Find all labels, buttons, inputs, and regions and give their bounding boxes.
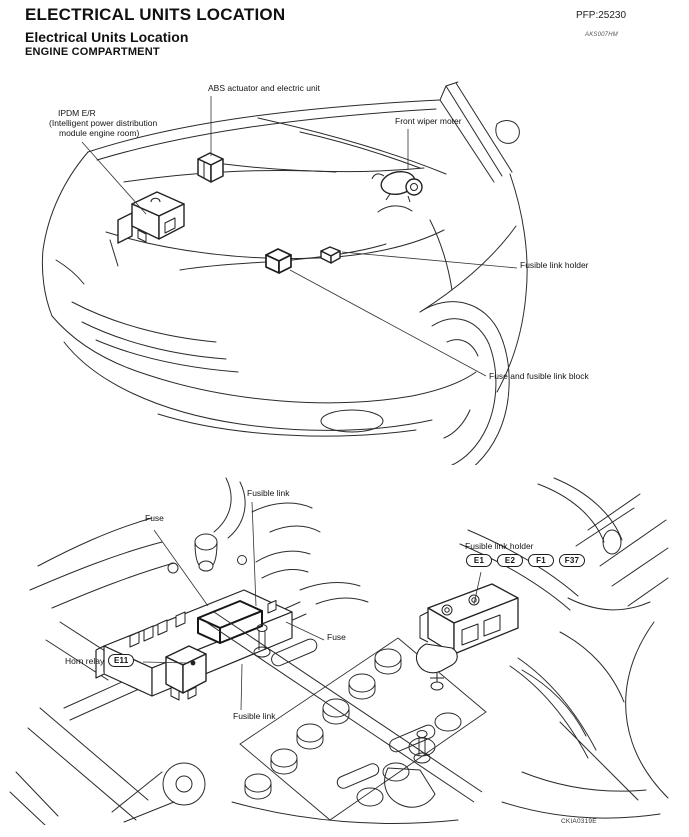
battery-area-figure xyxy=(0,470,689,825)
label-fusible-link-holder: Fusible link holder xyxy=(520,260,589,270)
label-ipdm-line2: (Intelligent power distribution xyxy=(49,118,157,128)
connector-badge-e2: E2 xyxy=(497,554,523,567)
horn-relay-dot xyxy=(191,661,196,666)
label-front-wiper-motor: Front wiper moter xyxy=(395,116,462,126)
page-title: ELECTRICAL UNITS LOCATION xyxy=(25,5,285,25)
abs-actuator-drawing xyxy=(198,153,223,182)
label-fuse-mid: Fuse xyxy=(327,632,346,642)
connector-badge-e1: E1 xyxy=(466,554,492,567)
fusible-link-holder-assembly-drawing xyxy=(416,584,518,690)
connector-badge-row: E1 E2 F1 F37 xyxy=(466,554,585,567)
label-fusible-link-top: Fusible link xyxy=(247,488,290,498)
fuse-block-drawing xyxy=(266,249,291,273)
pfp-code: PFP:25230 xyxy=(576,10,626,21)
wiper-motor-drawing xyxy=(372,169,422,202)
subtitle-ref-code: AKS007HM xyxy=(585,32,618,38)
horn-relay-label-row: Horn relay E11 xyxy=(65,654,134,667)
label-fusible-link-bottom: Fusible link xyxy=(233,711,276,721)
label-ipdm: IPDM E/R (Intelligent power distribution… xyxy=(49,108,157,138)
manual-page: ELECTRICAL UNITS LOCATION PFP:25230 Elec… xyxy=(0,0,689,837)
leader-lines xyxy=(82,96,517,376)
label-abs-actuator: ABS actuator and electric unit xyxy=(208,83,320,93)
section-heading: ENGINE COMPARTMENT xyxy=(25,46,160,58)
ipdm-module-drawing xyxy=(118,192,184,243)
figure-ref-code: CKIA0319E xyxy=(561,818,597,825)
label-ipdm-line3: module engine room) xyxy=(59,128,157,138)
page-subtitle: Electrical Units Location xyxy=(25,29,188,45)
fusible-link-holder-drawing xyxy=(321,247,340,263)
label-horn-relay: Horn relay xyxy=(65,656,104,666)
label-fuse-block: Fuse and fusible link block xyxy=(489,371,589,381)
horn-relay-drawing xyxy=(166,646,206,700)
connector-badge-e11: E11 xyxy=(108,654,134,667)
label-fusible-link-holder-bottom-fig: Fusible link holder xyxy=(465,541,534,551)
label-ipdm-line1: IPDM E/R xyxy=(58,108,157,118)
connector-badge-f1: F1 xyxy=(528,554,554,567)
connector-badge-f37: F37 xyxy=(559,554,585,567)
label-fuse-left: Fuse xyxy=(145,513,164,523)
